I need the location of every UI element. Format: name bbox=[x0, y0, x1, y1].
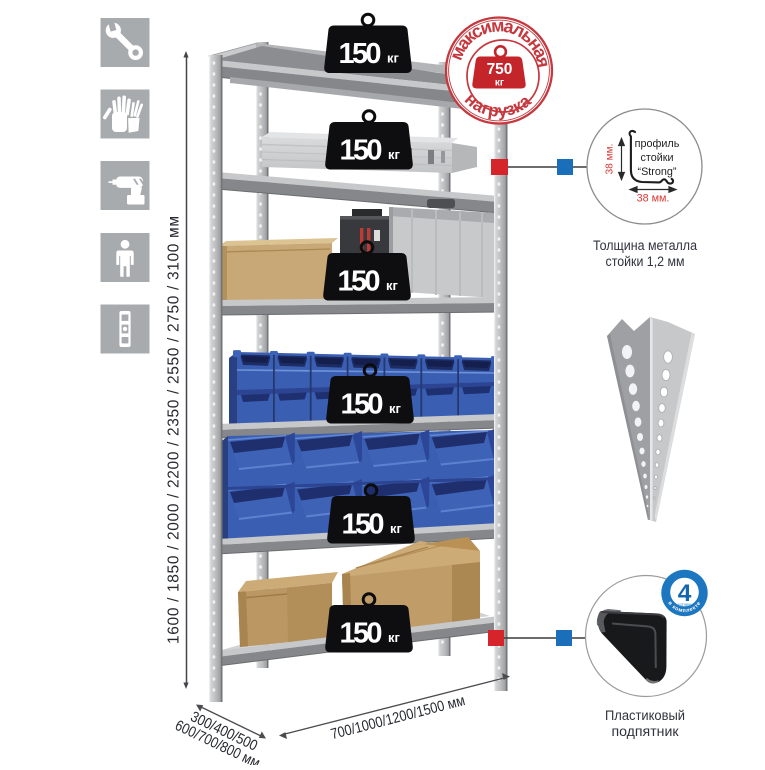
svg-text:38 мм.: 38 мм. bbox=[637, 193, 670, 205]
svg-text:штуки: штуки bbox=[678, 602, 691, 607]
svg-text:профиль: профиль bbox=[635, 138, 680, 150]
svg-text:Пластиковый: Пластиковый bbox=[605, 708, 685, 724]
svg-text:“Strong”: “Strong” bbox=[637, 166, 676, 178]
svg-text:кг: кг bbox=[495, 77, 504, 88]
svg-text:подпятник: подпятник bbox=[612, 724, 680, 740]
svg-text:38 мм.: 38 мм. bbox=[605, 143, 616, 174]
svg-text:1600 / 1850 / 2000 / 2200 / 23: 1600 / 1850 / 2000 / 2200 / 2350 / 2550 … bbox=[166, 216, 183, 644]
svg-text:стойки: стойки bbox=[640, 152, 673, 164]
svg-text:750: 750 bbox=[487, 61, 513, 78]
svg-text:стойки 1,2 мм: стойки 1,2 мм bbox=[606, 254, 685, 270]
svg-text:Толщина металла: Толщина металла bbox=[593, 238, 697, 254]
